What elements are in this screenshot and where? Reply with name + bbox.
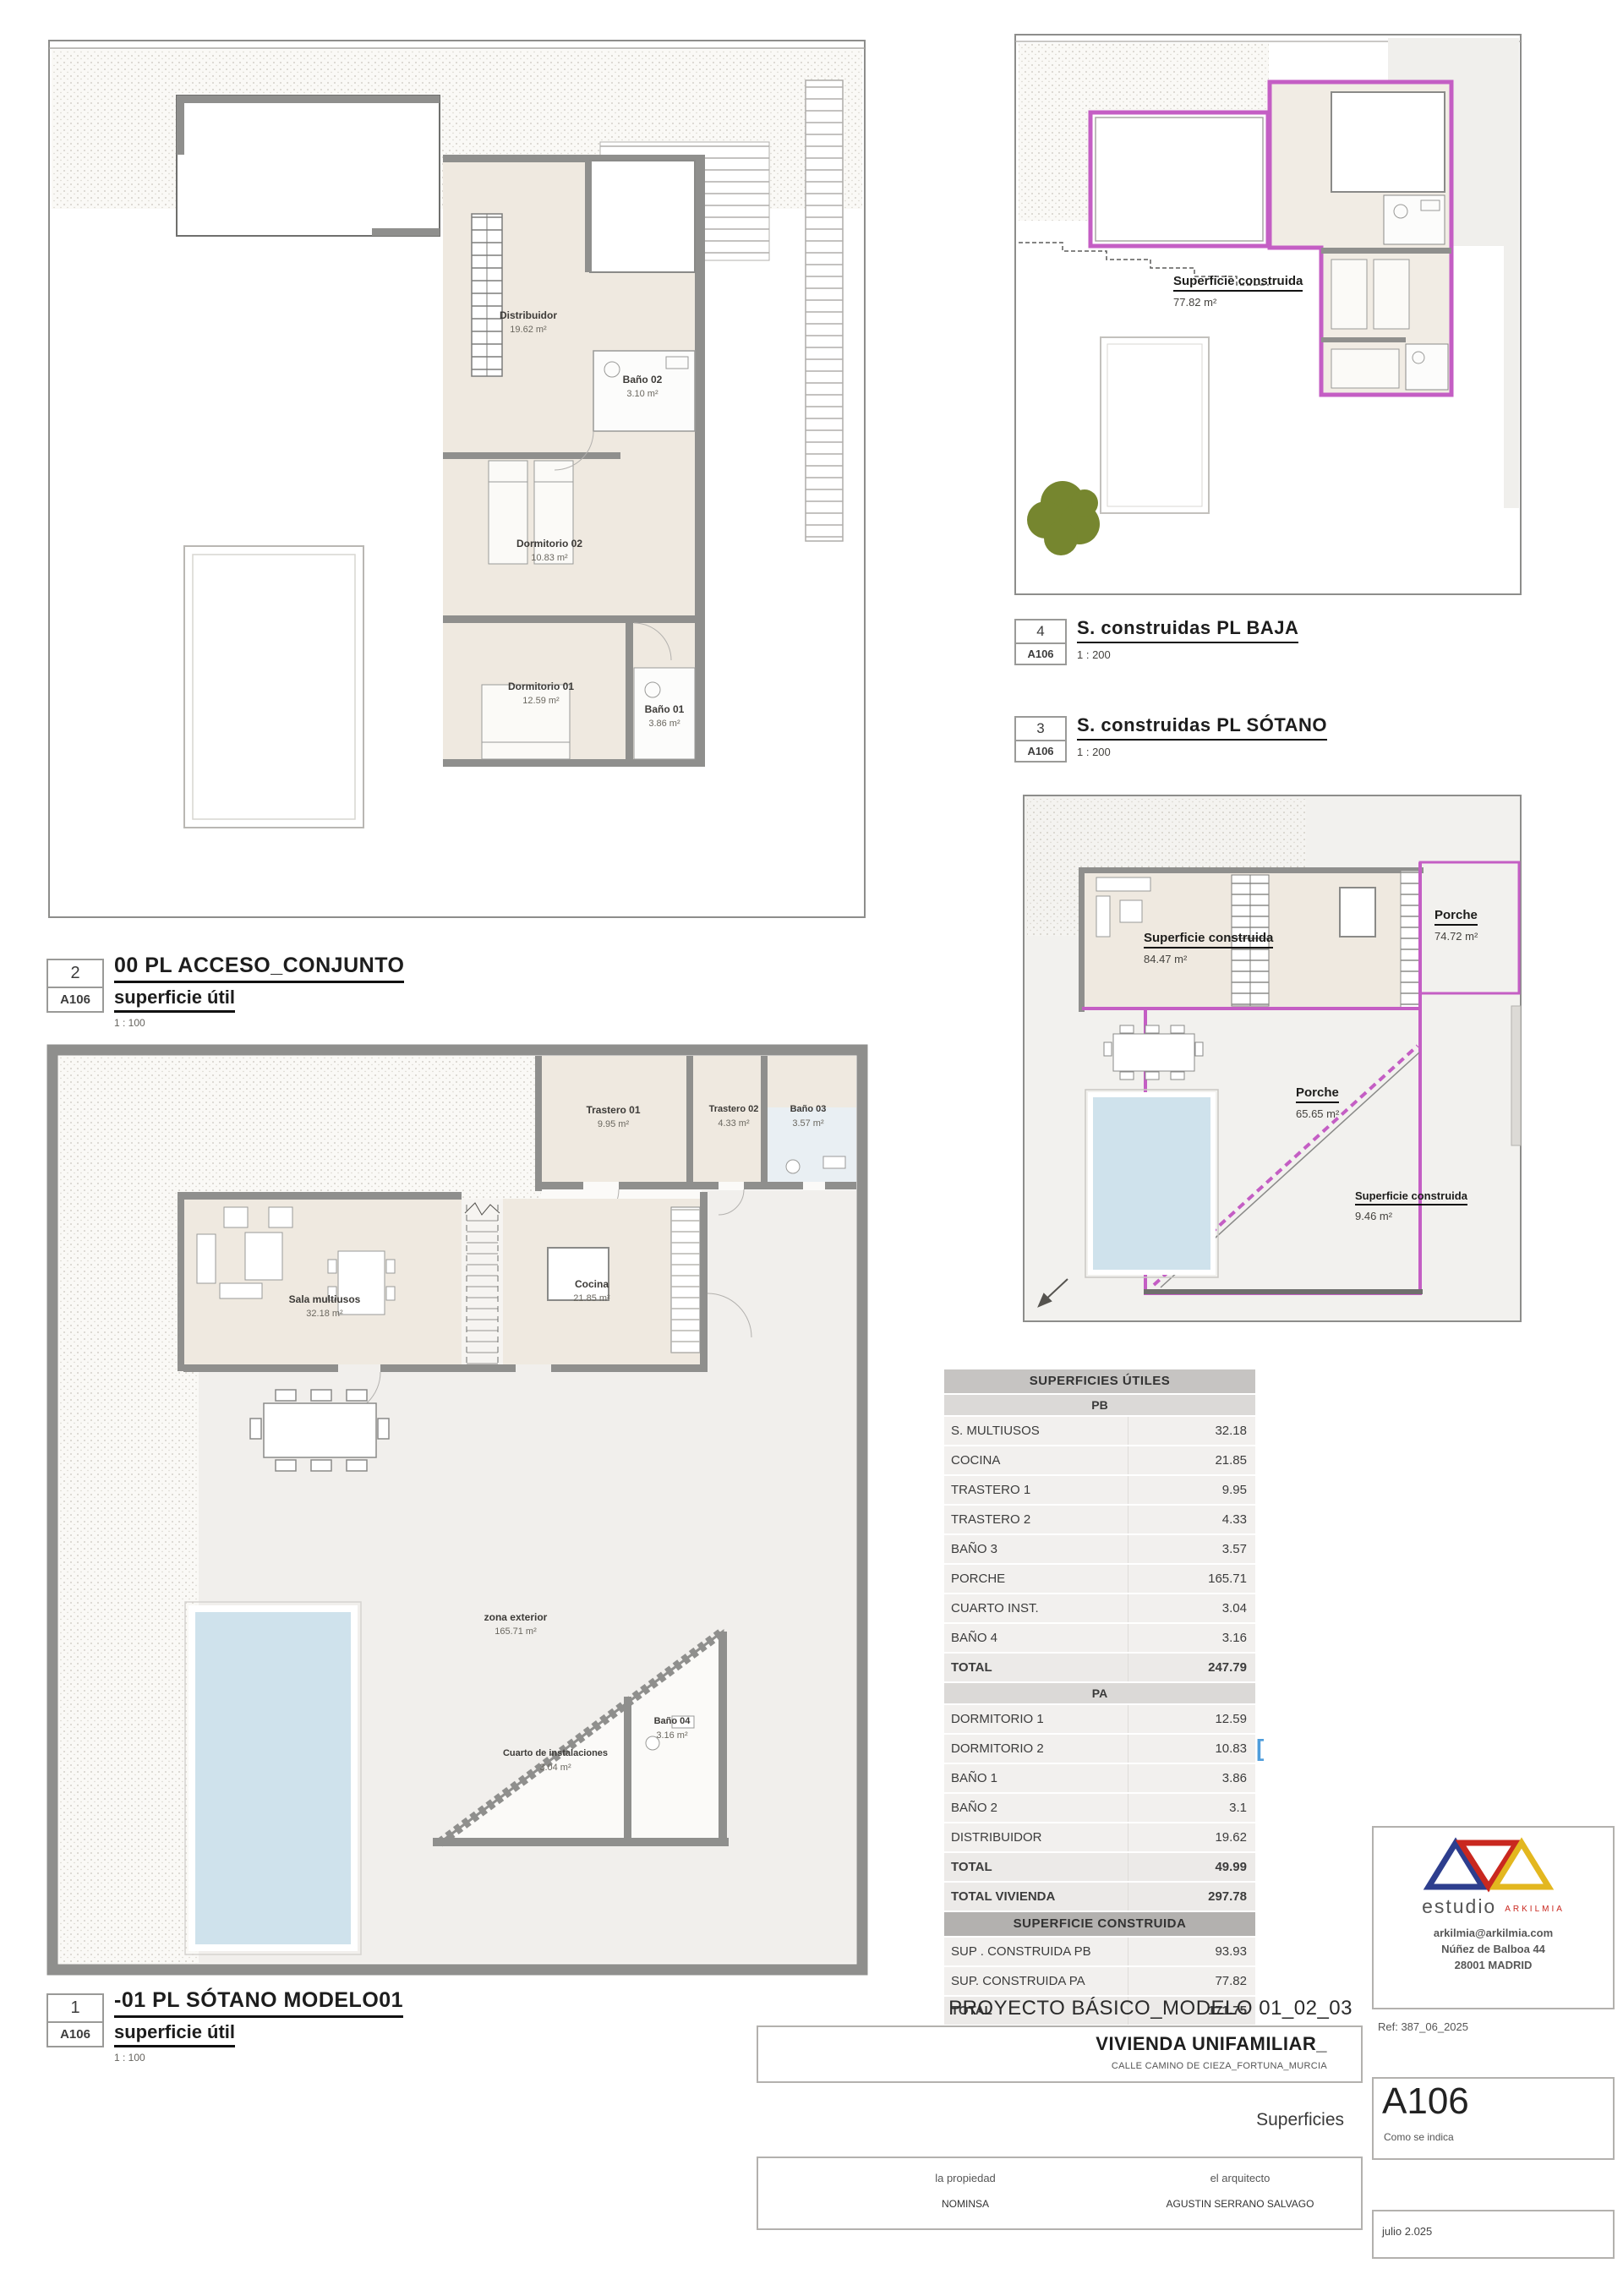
sheet-name: Superficies	[1014, 2110, 1344, 2130]
caption-scale: 1 : 100	[114, 1017, 404, 1029]
caption-number: 1	[48, 1995, 102, 2023]
project-address: CALLE CAMINO DE CIEZA_FORTUNA_MURCIA	[1112, 2061, 1327, 2071]
table-title: SUPERFICIES ÚTILES	[944, 1369, 1255, 1395]
caption-reference-box: 2 A106	[46, 959, 104, 1013]
caption-number: 3	[1016, 718, 1065, 741]
caption-reference-box: 1 A106	[46, 1993, 104, 2047]
table-row-total-pb: TOTAL247.79	[944, 1654, 1255, 1683]
gate	[1511, 1006, 1521, 1145]
sala-multiusos-room	[178, 1192, 462, 1371]
building-title-box: VIVIENDA UNIFAMILIAR_ CALLE CAMINO DE CI…	[757, 2025, 1363, 2083]
project-title: PROYECTO BÁSICO_MODELO 01_02_03	[761, 1997, 1352, 2020]
reference-number: Ref: 387_06_2025	[1378, 2020, 1468, 2033]
pool-outline	[184, 546, 363, 828]
plan-sotano-construidas-drawing: Superficie construida 84.47 m² Porche 74…	[1019, 790, 1526, 1331]
pool	[185, 1602, 361, 1954]
table-row: BAÑO 33.57	[944, 1535, 1255, 1565]
studio-name: estudio	[1422, 1895, 1496, 1917]
issue-date: julio 2.025	[1382, 2225, 1432, 2238]
caption-acceso: 2 A106 00 PL ACCESO_CONJUNTO superficie …	[46, 954, 404, 1029]
drawing-sheet: Distribuidor 19.62 m² Baño 02 3.10 m² Do…	[0, 0, 1623, 2296]
table-row: PORCHE165.71	[944, 1565, 1255, 1594]
caption-scale: 1 : 100	[114, 2052, 403, 2064]
caption-title: 00 PL ACCESO_CONJUNTO	[114, 954, 404, 983]
sheet-number: A106	[1382, 2080, 1469, 2123]
building-floorplan	[1079, 867, 1424, 1012]
bed-dormitorio01	[482, 685, 570, 759]
table-section-pa: PA	[944, 1683, 1255, 1705]
parties-box: la propiedad NOMINSA el arquitecto AGUST…	[757, 2157, 1363, 2230]
areas-table: SUPERFICIES ÚTILES PB S. MULTIUSOS32.18 …	[944, 1369, 1255, 2026]
sheet-number-box: A106 Como se indica	[1372, 2077, 1615, 2160]
caption-sheet: A106	[48, 2023, 102, 2046]
table-row-total-vivienda: TOTAL VIVIENDA297.78	[944, 1883, 1255, 1912]
caption-number: 4	[1016, 620, 1065, 644]
table-row: BAÑO 13.86	[944, 1764, 1255, 1794]
studio-name-line: estudioARKILMIA	[1374, 1895, 1613, 1918]
owner-label: la propiedad	[839, 2172, 1092, 2184]
plan-sotano-construidas-svg	[1019, 790, 1526, 1331]
architect-block: el arquitecto AGUSTIN SERRANO SALVAGO	[1113, 2172, 1367, 2210]
studio-address-line1: Núñez de Balboa 44	[1374, 1941, 1613, 1957]
caption-sheet: A106	[1016, 644, 1065, 664]
table-row: DORMITORIO 112.59	[944, 1705, 1255, 1735]
staircase	[472, 214, 502, 376]
caption-number: 2	[48, 960, 102, 988]
pool-outline	[1101, 337, 1209, 513]
cocina-room	[503, 1192, 708, 1371]
caption-title: S. construidas PL SÓTANO	[1077, 714, 1327, 741]
text-cursor-artifact: [	[1256, 1735, 1264, 1762]
scale-note: Como se indica	[1384, 2131, 1454, 2143]
owner-name: NOMINSA	[839, 2198, 1092, 2210]
table-row: S. MULTIUSOS32.18	[944, 1417, 1255, 1446]
table-row: COCINA21.85	[944, 1446, 1255, 1476]
studio-logo-icon	[1422, 1836, 1566, 1894]
table-row: BAÑO 43.16	[944, 1624, 1255, 1654]
caption-title: S. construidas PL BAJA	[1077, 617, 1298, 643]
architect-name: AGUSTIN SERRANO SALVAGO	[1113, 2198, 1367, 2210]
table-row: TRASTERO 24.33	[944, 1506, 1255, 1535]
caption-reference-box: 4 A106	[1014, 619, 1067, 665]
side-strip	[1504, 246, 1519, 508]
table-row: SUP . CONSTRUIDA PB93.93	[944, 1938, 1255, 1967]
building-title: VIVIENDA UNIFAMILIAR_	[1096, 2033, 1327, 2055]
plan-baja-drawing: Superficie construida 77.82 m²	[1010, 30, 1526, 600]
courtyard	[177, 96, 440, 236]
table-row: DORMITORIO 210.83	[944, 1735, 1255, 1764]
caption-sotano: 1 A106 -01 PL SÓTANO MODELO01 superficie…	[46, 1988, 403, 2064]
studio-email: arkilmia@arkilmia.com	[1374, 1925, 1613, 1941]
table-row: TRASTERO 19.95	[944, 1476, 1255, 1506]
plan-baja-svg	[1010, 30, 1526, 600]
pool	[1085, 1090, 1218, 1277]
table-row-total-pa: TOTAL49.99	[944, 1853, 1255, 1883]
exterior-ground-right	[702, 1190, 856, 1371]
caption-baja: 4 A106 S. construidas PL BAJA 1 : 200	[1014, 617, 1298, 665]
dining-table	[1104, 1025, 1203, 1080]
bano01-fixtures	[634, 668, 695, 759]
date-box: julio 2.025	[1372, 2210, 1615, 2259]
courtyard-magenta	[1090, 112, 1268, 246]
staircase	[462, 1199, 503, 1364]
studio-brand: ARKILMIA	[1505, 1905, 1565, 1914]
table-row: DISTRIBUIDOR19.62	[944, 1823, 1255, 1853]
caption-sheet: A106	[1016, 741, 1065, 761]
studio-logo-box: estudioARKILMIA arkilmia@arkilmia.com Nú…	[1372, 1826, 1615, 2009]
caption-subtitle: superficie útil	[114, 987, 235, 1013]
caption-subtitle: superficie útil	[114, 2021, 235, 2047]
caption-title: -01 PL SÓTANO MODELO01	[114, 1988, 403, 2018]
caption-reference-box: 3 A106	[1014, 716, 1067, 763]
side-walkway	[806, 80, 843, 541]
plan-sotano-svg	[42, 1040, 875, 1982]
caption-sheet: A106	[48, 988, 102, 1011]
table-section-pb: PB	[944, 1395, 1255, 1417]
architect-label: el arquitecto	[1113, 2172, 1367, 2184]
caption-scale: 1 : 200	[1077, 746, 1327, 758]
plan-sotano-drawing: Trastero 01 9.95 m² Trastero 02 4.33 m² …	[42, 1040, 875, 1982]
studio-address-line2: 28001 MADRID	[1374, 1957, 1613, 1973]
table-row: SUP. CONSTRUIDA PA77.82	[944, 1967, 1255, 1997]
table-row: CUARTO INST.3.04	[944, 1594, 1255, 1624]
table-row: BAÑO 23.1	[944, 1794, 1255, 1823]
table-section-construida: SUPERFICIE CONSTRUIDA	[944, 1912, 1255, 1938]
caption-sotano-construidas: 3 A106 S. construidas PL SÓTANO 1 : 200	[1014, 714, 1327, 763]
plan-acceso-svg	[42, 34, 875, 926]
owner-block: la propiedad NOMINSA	[839, 2172, 1092, 2210]
caption-scale: 1 : 200	[1077, 648, 1298, 661]
plan-acceso-drawing: Distribuidor 19.62 m² Baño 02 3.10 m² Do…	[42, 34, 875, 926]
